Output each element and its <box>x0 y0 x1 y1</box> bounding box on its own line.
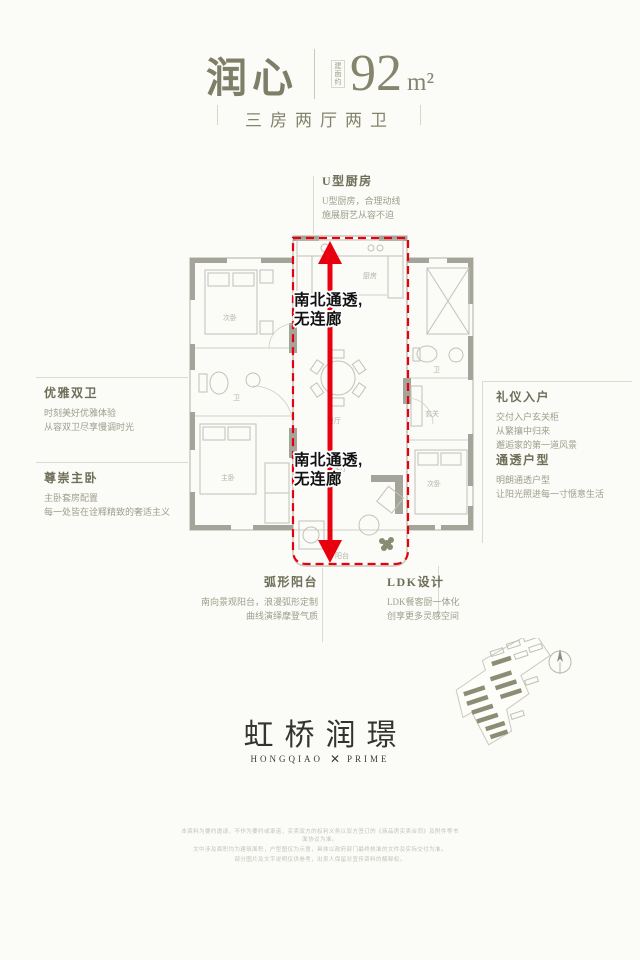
annotation-title: 优雅双卫 <box>44 384 194 401</box>
subtitle-tick-left <box>217 105 218 125</box>
annotation-line: 时刻美好优雅体验 <box>44 406 194 420</box>
annotation-line: LDK餐客厨一体化 <box>387 595 537 609</box>
annotation-line: 曲线演绎摩登气质 <box>180 609 318 623</box>
annotation-body: U型厨房，合理动线 施展厨艺从容不迫 <box>322 194 472 222</box>
annotation-line: 每一处皆在诠释精致的奢适主义 <box>44 505 209 519</box>
annotation-title: 尊崇主卧 <box>44 469 209 486</box>
annotation-title: 通透户型 <box>496 451 636 468</box>
page-title: 润心 <box>206 44 298 104</box>
room-label: 卫 <box>433 366 440 374</box>
room-label: 次卧 <box>427 479 441 488</box>
leader-line <box>482 381 483 543</box>
leader-line <box>36 462 188 463</box>
annotation-title: 礼仪入户 <box>496 388 636 405</box>
area-group: 建面约 92 m² <box>331 48 434 100</box>
highlight-label-line1: 南北通透, <box>294 451 363 470</box>
leader-line <box>313 176 314 234</box>
north-south-arrow-icon <box>318 241 342 563</box>
annotation-entry: 礼仪入户 交付入户玄关柜 从繁攘中归来 邂逅家的第一道风景 <box>496 388 636 452</box>
annotation-line: 邂逅家的第一道风景 <box>496 438 636 452</box>
highlight-label-bottom: 南北通透, 无连廊 <box>294 451 363 489</box>
annotation-line: 南向景观阳台，浪漫弧形定制 <box>180 595 318 609</box>
disclaimer: 本资料为要约邀请，不作为要约或承诺，买卖双方的权利义务以双方签订的《商品房买卖合… <box>181 828 459 866</box>
annotation-line: 主卧套房配置 <box>44 491 209 505</box>
annotation-line: U型厨房，合理动线 <box>322 194 472 208</box>
annotation-line: 让阳光照进每一寸惬意生活 <box>496 487 636 501</box>
annotation-baths: 优雅双卫 时刻美好优雅体验 从容双卫尽享慢调时光 <box>44 384 194 434</box>
subtitle-tick-right <box>420 105 421 125</box>
brand-en-right: PRIME <box>347 754 390 764</box>
floorplan-poster: 润心 建面约 92 m² 三房两厅两卫 <box>0 0 640 960</box>
layout-subtitle: 三房两厅两卫 <box>0 106 640 131</box>
annotation-balcony: 弧形阳台 南向景观阳台，浪漫弧形定制 曲线演绎摩登气质 <box>180 573 318 623</box>
annotation-body: 交付入户玄关柜 从繁攘中归来 邂逅家的第一道风景 <box>496 410 636 452</box>
title-divider <box>314 49 315 99</box>
brand-en-left: HONGQIAO <box>250 754 323 764</box>
annotation-line: 从繁攘中归来 <box>496 424 636 438</box>
disclaimer-line: 文中涉及面积均为建筑面积，户型图仅为示意，具体以政府部门最终核准的文件及实际交付… <box>181 846 459 854</box>
brand-x-icon: ✕ <box>330 752 340 766</box>
leader-line <box>482 381 632 382</box>
annotation-kitchen: U型厨房 U型厨房，合理动线 施展厨艺从容不迫 <box>322 172 472 222</box>
area-note: 建面约 <box>331 60 345 88</box>
annotation-body: 明朗通透户型 让阳光照进每一寸惬意生活 <box>496 473 636 501</box>
annotation-body: 主卧套房配置 每一处皆在诠释精致的奢适主义 <box>44 491 209 519</box>
highlight-label-top: 南北通透, 无连廊 <box>294 291 363 329</box>
leader-line <box>36 377 188 378</box>
annotation-ldk: LDK设计 LDK餐客厨一体化 创享更多灵感空间 <box>387 573 537 623</box>
annotation-line: 创享更多灵感空间 <box>387 609 537 623</box>
header: 润心 建面约 92 m² <box>0 44 640 104</box>
disclaimer-line: 本资料为要约邀请，不作为要约或承诺，买卖双方的权利义务以双方签订的《商品房买卖合… <box>181 828 459 844</box>
compass-icon <box>545 644 575 680</box>
annotation-body: 时刻美好优雅体验 从容双卫尽享慢调时光 <box>44 406 194 434</box>
annotation-master: 尊崇主卧 主卧套房配置 每一处皆在诠释精致的奢适主义 <box>44 469 209 519</box>
brand-logo-en: HONGQIAO ✕ PRIME <box>0 752 640 766</box>
annotation-line: 交付入户玄关柜 <box>496 410 636 424</box>
room-label: 主卧 <box>221 473 235 482</box>
disclaimer-line: 部分图片及文字说明仅供参考，出卖人保留对宣传资料的解释权。 <box>181 856 459 864</box>
leader-line <box>322 568 323 642</box>
annotation-body: LDK餐客厨一体化 创享更多灵感空间 <box>387 595 537 623</box>
area-value: 92 <box>350 48 402 100</box>
highlight-label-line1: 南北通透, <box>294 291 363 310</box>
room-label: 玄关 <box>425 409 439 418</box>
annotation-title: U型厨房 <box>322 172 472 189</box>
annotation-line: 从容双卫尽享慢调时光 <box>44 420 194 434</box>
annotation-body: 南向景观阳台，浪漫弧形定制 曲线演绎摩登气质 <box>180 595 318 623</box>
annotation-line: 施展厨艺从容不迫 <box>322 208 472 222</box>
highlight-label-line2: 无连廊 <box>294 310 363 329</box>
room-label: 次卧 <box>223 313 237 322</box>
annotation-line: 明朗通透户型 <box>496 473 636 487</box>
red-highlight <box>285 228 420 576</box>
annotation-transparent: 通透户型 明朗通透户型 让阳光照进每一寸惬意生活 <box>496 451 636 501</box>
room-label: 卫 <box>233 394 240 402</box>
area-unit: m² <box>407 69 434 97</box>
brand-logo-cn: 虹桥润璟 <box>0 710 640 754</box>
highlight-label-line2: 无连廊 <box>294 470 363 489</box>
highlight-dashed-box <box>293 238 408 564</box>
